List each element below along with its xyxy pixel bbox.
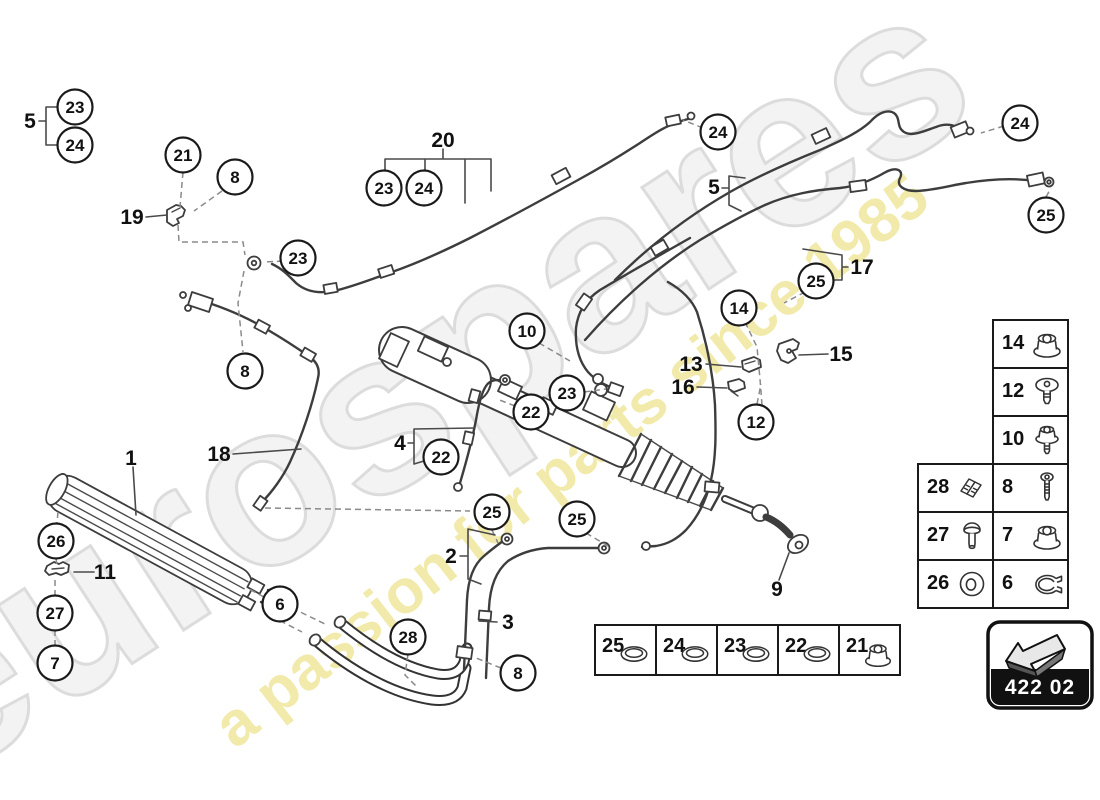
part-label-5: 5: [708, 176, 720, 199]
callout-7[interactable]: 7: [38, 646, 73, 681]
callout-8[interactable]: 8: [228, 354, 263, 389]
callout-number: 22: [522, 403, 541, 422]
callout-23[interactable]: 23: [281, 241, 316, 276]
callout-22[interactable]: 22: [514, 395, 549, 430]
callout-12[interactable]: 12: [739, 405, 774, 440]
callout-number: 25: [483, 503, 502, 522]
seal-cell-21[interactable]: 21: [839, 625, 900, 675]
legend-table: 141210288277266: [918, 320, 1068, 608]
part-label-9: 9: [771, 578, 783, 601]
callout-6[interactable]: 6: [263, 587, 298, 622]
callout-number: 14: [730, 299, 749, 318]
legend-cell-10[interactable]: 10: [993, 416, 1068, 464]
callout-25[interactable]: 25: [475, 495, 510, 530]
legend-cell-8[interactable]: 8: [993, 464, 1068, 512]
legend-cell-number: 28: [927, 476, 949, 498]
flange-nut-icon: [1034, 527, 1060, 550]
seals-table: 2524232221: [595, 625, 900, 675]
seal-cell-25[interactable]: 25: [595, 625, 656, 675]
callout-21[interactable]: 21: [166, 138, 201, 173]
callout-23[interactable]: 23: [367, 171, 402, 206]
callout-25[interactable]: 25: [1029, 198, 1064, 233]
callout-25[interactable]: 25: [560, 502, 595, 537]
part-label-1: 1: [125, 447, 137, 470]
part-label-13: 13: [679, 353, 702, 376]
part-label-18: 18: [207, 443, 231, 466]
parts-diagram-canvas: eurospares a passion for parts since 198…: [0, 0, 1100, 800]
callout-10[interactable]: 10: [510, 314, 545, 349]
callout-number: 7: [50, 654, 59, 673]
callout-number: 21: [174, 146, 193, 165]
callout-number: 8: [240, 362, 249, 381]
part-label-4: 4: [394, 432, 406, 455]
callout-23[interactable]: 23: [58, 90, 93, 125]
legend-cell-27[interactable]: 27: [918, 512, 993, 560]
legend-cell-28[interactable]: 28: [918, 464, 993, 512]
callout-number: 23: [558, 384, 577, 403]
legend-cell-number: 27: [927, 524, 949, 546]
flange-nut-icon: [866, 645, 891, 666]
o-ring-icon: [743, 647, 769, 662]
callout-number: 26: [47, 532, 66, 551]
part-label-16: 16: [671, 376, 694, 399]
legend-cell-number: 7: [1002, 524, 1013, 546]
callout-28[interactable]: 28: [391, 620, 426, 655]
callout-24[interactable]: 24: [701, 115, 736, 150]
callout-number: 23: [66, 98, 85, 117]
callout-number: 8: [513, 664, 522, 683]
part-label-5: 5: [24, 110, 36, 133]
callout-number: 27: [46, 604, 65, 623]
legend-cell-number: 12: [1002, 380, 1024, 402]
callout-number: 28: [399, 628, 418, 647]
callout-number: 24: [415, 179, 434, 198]
callout-number: 25: [807, 272, 826, 291]
callout-number: 12: [747, 413, 766, 432]
legend-cell-number: 10: [1002, 428, 1024, 450]
legend-cell-number: 6: [1002, 572, 1013, 594]
callout-27[interactable]: 27: [38, 596, 73, 631]
callout-number: 24: [66, 136, 85, 155]
legend-cell-12[interactable]: 12: [993, 368, 1068, 416]
seal-cell-22[interactable]: 22: [778, 625, 839, 675]
callout-number: 25: [568, 510, 587, 529]
seal-cell-number: 21: [846, 635, 868, 657]
o-ring-icon: [682, 647, 708, 662]
callout-25[interactable]: 25: [799, 264, 834, 299]
legend-cell-26[interactable]: 26: [918, 560, 993, 608]
callout-number: 24: [1011, 114, 1030, 133]
o-ring-icon: [804, 647, 830, 662]
legend-cell-14[interactable]: 14: [993, 320, 1068, 368]
part-label-19: 19: [120, 206, 143, 229]
legend-cell-number: 8: [1002, 476, 1013, 498]
callout-number: 23: [289, 249, 308, 268]
seal-cell-24[interactable]: 24: [656, 625, 717, 675]
seal-cell-23[interactable]: 23: [717, 625, 778, 675]
callout-24[interactable]: 24: [1003, 106, 1038, 141]
diagram-code-badge[interactable]: 422 02: [988, 622, 1092, 708]
callout-number: 25: [1037, 206, 1056, 225]
legend-cell-number: 26: [927, 572, 949, 594]
legend-cell-7[interactable]: 7: [993, 512, 1068, 560]
part-label-15: 15: [829, 343, 853, 366]
legend-cell-6[interactable]: 6: [993, 560, 1068, 608]
callout-8[interactable]: 8: [501, 656, 536, 691]
part-label-2: 2: [445, 545, 457, 568]
callout-number: 24: [709, 123, 728, 142]
part-label-20: 20: [431, 129, 454, 152]
callout-number: 6: [275, 595, 284, 614]
callout-26[interactable]: 26: [39, 524, 74, 559]
callout-24[interactable]: 24: [407, 171, 442, 206]
part-label-3: 3: [502, 611, 514, 634]
callout-23[interactable]: 23: [550, 376, 585, 411]
diagram-svg: eurospares a passion for parts since 198…: [0, 0, 1100, 800]
callout-number: 8: [230, 168, 239, 187]
callout-14[interactable]: 14: [722, 291, 757, 326]
washer-icon: [961, 573, 984, 596]
legend-cell-number: 14: [1002, 332, 1025, 354]
callout-22[interactable]: 22: [424, 440, 459, 475]
callout-number: 22: [432, 448, 451, 467]
callout-8[interactable]: 8: [218, 160, 253, 195]
o-ring-icon: [621, 647, 647, 662]
flange-nut-icon: [1034, 335, 1060, 358]
badge-code-text: 422 02: [1005, 676, 1075, 699]
callout-24[interactable]: 24: [58, 128, 93, 163]
part-label-11: 11: [94, 561, 117, 584]
callout-number: 23: [375, 179, 394, 198]
callout-number: 10: [518, 322, 537, 341]
part-label-17: 17: [850, 256, 873, 279]
